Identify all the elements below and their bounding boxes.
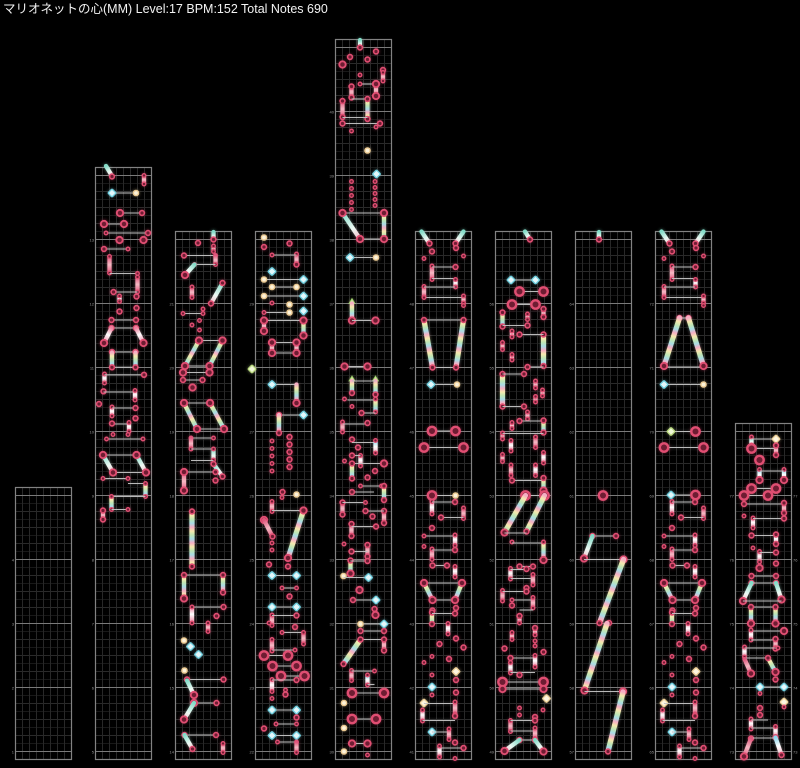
svg-text:56: 56: [490, 301, 495, 306]
svg-text:54: 54: [490, 429, 495, 434]
svg-text:29: 29: [250, 301, 255, 306]
svg-text:77: 77: [793, 493, 798, 498]
svg-text:30: 30: [330, 749, 335, 754]
svg-text:10: 10: [90, 429, 95, 434]
svg-text:64: 64: [570, 301, 575, 306]
svg-text:20: 20: [170, 365, 175, 370]
svg-text:34: 34: [330, 493, 335, 498]
svg-text:62: 62: [570, 429, 575, 434]
svg-text:15: 15: [170, 685, 175, 690]
svg-text:18: 18: [170, 493, 175, 498]
svg-text:17: 17: [170, 557, 175, 562]
svg-text:35: 35: [330, 429, 335, 434]
svg-text:22: 22: [250, 749, 255, 754]
svg-text:68: 68: [650, 557, 655, 562]
svg-text:14: 14: [170, 749, 175, 754]
svg-text:50: 50: [490, 685, 495, 690]
svg-text:74: 74: [730, 685, 735, 690]
svg-text:77: 77: [730, 493, 735, 498]
svg-text:40: 40: [330, 109, 335, 114]
svg-text:52: 52: [490, 557, 495, 562]
svg-text:37: 37: [330, 301, 335, 306]
svg-text:19: 19: [170, 429, 175, 434]
svg-text:49: 49: [490, 749, 495, 754]
svg-text:74: 74: [793, 685, 798, 690]
svg-text:38: 38: [330, 237, 335, 242]
svg-text:67: 67: [650, 621, 655, 626]
svg-text:26: 26: [250, 493, 255, 498]
svg-text:46: 46: [410, 429, 415, 434]
svg-text:76: 76: [793, 557, 798, 562]
svg-text:59: 59: [570, 621, 575, 626]
svg-text:51: 51: [490, 621, 495, 626]
svg-text:70: 70: [650, 429, 655, 434]
svg-text:65: 65: [650, 749, 655, 754]
svg-text:44: 44: [410, 557, 415, 562]
svg-text:24: 24: [250, 621, 255, 626]
svg-text:36: 36: [330, 365, 335, 370]
svg-text:41: 41: [410, 749, 415, 754]
svg-text:39: 39: [330, 173, 335, 178]
svg-text:マリオネットの心(MM) Level:17 BPM:152: マリオネットの心(MM) Level:17 BPM:152 Total Note…: [3, 2, 328, 16]
svg-text:57: 57: [570, 749, 575, 754]
svg-text:32: 32: [330, 621, 335, 626]
svg-text:61: 61: [570, 493, 575, 498]
svg-text:73: 73: [730, 749, 735, 754]
svg-text:42: 42: [410, 685, 415, 690]
svg-text:13: 13: [90, 237, 95, 242]
svg-text:45: 45: [410, 493, 415, 498]
svg-text:21: 21: [170, 301, 175, 306]
svg-text:12: 12: [90, 301, 95, 306]
svg-text:73: 73: [793, 749, 798, 754]
svg-text:72: 72: [650, 301, 655, 306]
svg-text:58: 58: [570, 685, 575, 690]
svg-text:63: 63: [570, 365, 575, 370]
svg-text:76: 76: [730, 557, 735, 562]
svg-text:48: 48: [410, 301, 415, 306]
svg-text:47: 47: [410, 365, 415, 370]
svg-text:31: 31: [330, 685, 335, 690]
svg-text:69: 69: [650, 493, 655, 498]
svg-text:75: 75: [730, 621, 735, 626]
svg-text:33: 33: [330, 557, 335, 562]
svg-text:75: 75: [793, 621, 798, 626]
svg-text:16: 16: [170, 621, 175, 626]
svg-text:66: 66: [650, 685, 655, 690]
svg-text:55: 55: [490, 365, 495, 370]
svg-text:23: 23: [250, 685, 255, 690]
svg-text:60: 60: [570, 557, 575, 562]
svg-text:25: 25: [250, 557, 255, 562]
svg-text:27: 27: [250, 429, 255, 434]
svg-text:71: 71: [650, 365, 655, 370]
svg-text:53: 53: [490, 493, 495, 498]
svg-text:43: 43: [410, 621, 415, 626]
